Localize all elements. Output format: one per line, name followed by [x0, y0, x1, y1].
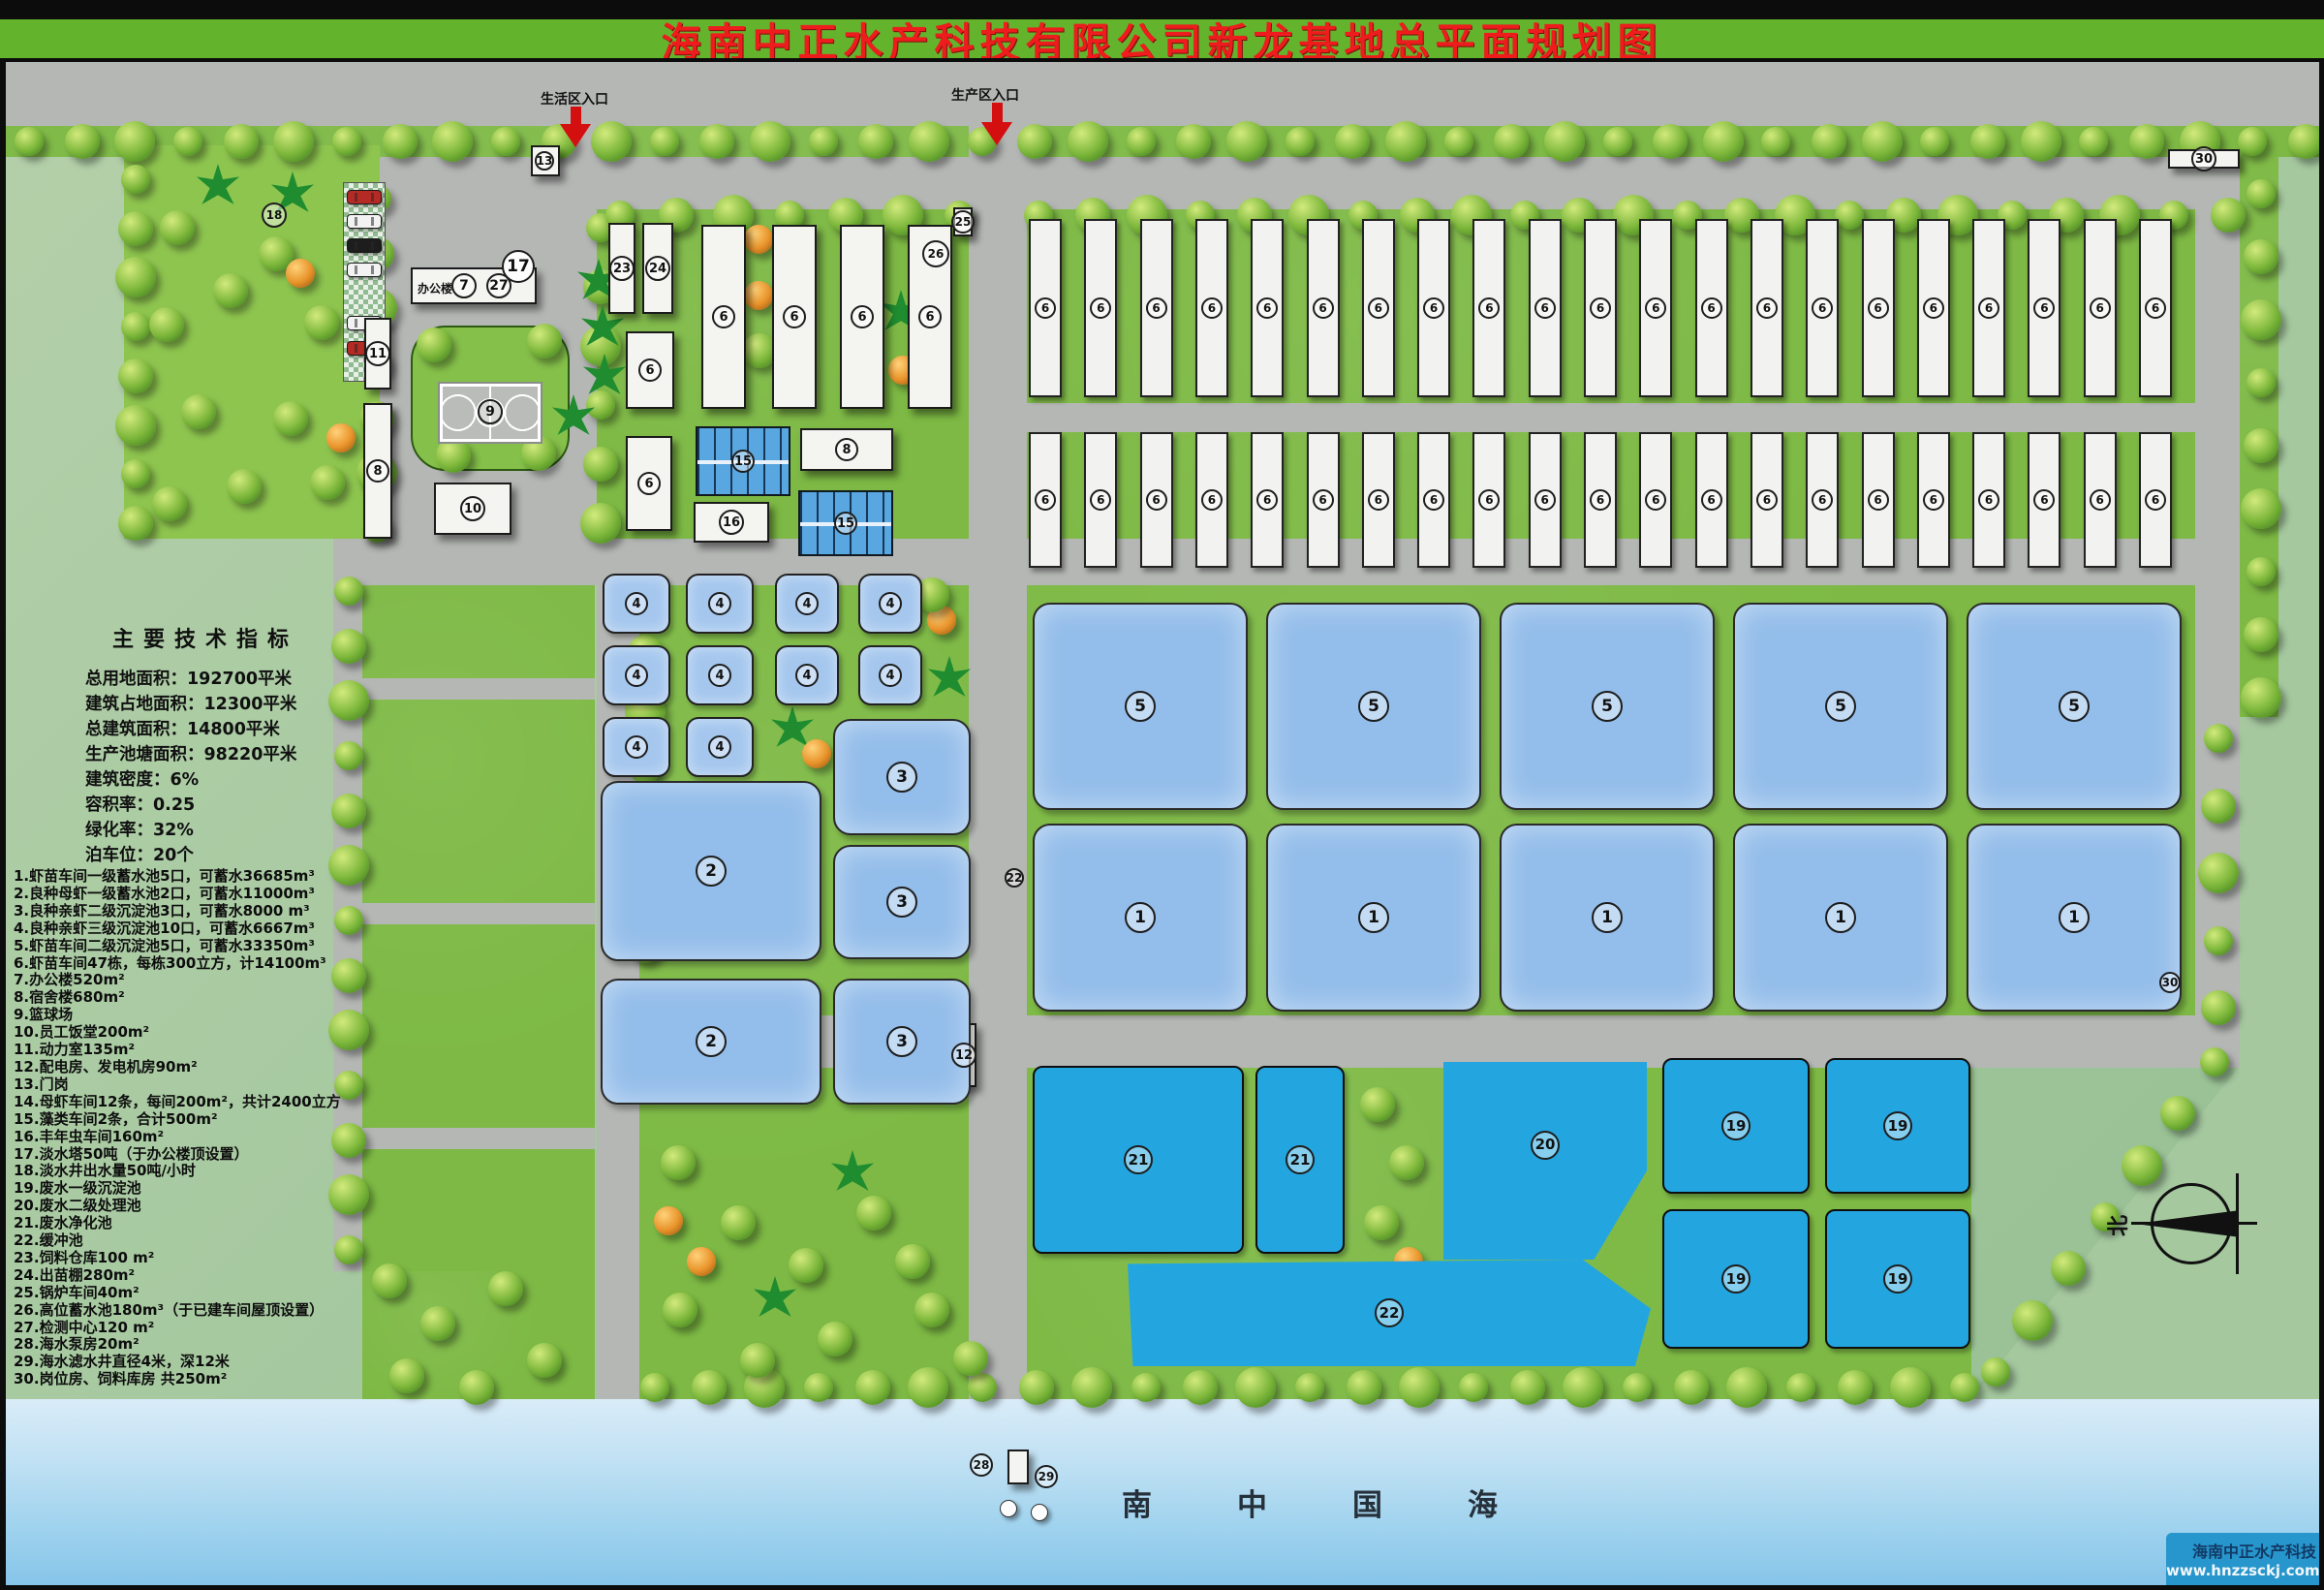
number-marker-28: 28 [970, 1453, 993, 1477]
legend-item: 3.良种亲虾二级沉淀池3口，可蓄水8000 m³ [14, 903, 339, 920]
filter-well-dot [1000, 1500, 1017, 1517]
frame-right [2319, 62, 2324, 1590]
tree [663, 1293, 697, 1327]
tree [310, 465, 345, 500]
tree [661, 1145, 696, 1180]
hedge-bush [2012, 1300, 2053, 1341]
hedge-bush [2201, 789, 2236, 824]
number-marker-10: 10 [460, 496, 485, 521]
hedge-bush [1563, 1367, 1603, 1408]
number-marker-26: 26 [922, 240, 949, 267]
site-road [362, 903, 595, 924]
legend-item: 8.宿舍楼680m² [14, 989, 339, 1007]
hedge-bush [2200, 1047, 2229, 1076]
entrance-living-label: 生活区入口 [541, 89, 608, 109]
hedge-bush [224, 124, 259, 159]
hedge-bush [1071, 1367, 1112, 1408]
number-marker-13: 13 [535, 151, 554, 171]
tree [802, 739, 831, 768]
number-marker-23: 23 [609, 256, 635, 281]
number-marker-24: 24 [645, 256, 670, 281]
number-marker-6: 6 [918, 305, 942, 328]
number-marker-3: 3 [886, 887, 917, 918]
entrance-production-label: 生产区入口 [951, 85, 1019, 105]
hedge-bush [1603, 127, 1632, 156]
tree [740, 1343, 775, 1378]
legend-item: 7.办公楼520m² [14, 972, 339, 989]
hedge-bush [2241, 299, 2281, 340]
site-plan-canvas: 海南中正水产科技有限公司新龙基地总平面规划图 海榆西线 生活区入口 生产区入口 … [0, 0, 2324, 1590]
number-marker-1: 1 [1592, 902, 1623, 933]
hedge-bush [2247, 557, 2276, 586]
number-marker-11: 11 [365, 341, 390, 366]
indicator-line: 总建筑面积：14800平米 [85, 717, 376, 742]
indicator-line: 建筑占地面积：12300平米 [85, 692, 376, 717]
tree [687, 1247, 716, 1276]
hedge-bush [1970, 124, 2005, 159]
legend-item: 28.海水泵房20m² [14, 1336, 339, 1354]
frame-bottom [0, 1585, 2324, 1590]
tree [389, 1358, 424, 1393]
parked-car [347, 190, 382, 204]
legend-item: 19.废水一级沉淀池 [14, 1180, 339, 1198]
hedge-bush [1494, 124, 1529, 159]
hedge-bush [1399, 1367, 1440, 1408]
tree [744, 281, 773, 310]
number-marker-4: 4 [625, 735, 648, 759]
number-marker-4: 4 [625, 592, 648, 615]
number-marker-6: 6 [1923, 489, 1944, 511]
legend-item: 24.出苗棚280m² [14, 1267, 339, 1285]
tree [181, 394, 216, 429]
hedge-bush [1131, 1373, 1161, 1402]
number-marker-19: 19 [1883, 1111, 1912, 1140]
legend-item: 12.配电房、发电机房90m² [14, 1059, 339, 1076]
legend-item: 15.藻类车间2条，合计500m² [14, 1111, 339, 1129]
number-marker-6: 6 [637, 472, 661, 495]
hedge-bush [118, 359, 153, 393]
site-road [969, 585, 1027, 1399]
hedge-bush [1812, 124, 1846, 159]
number-marker-6: 6 [1756, 297, 1778, 319]
indicator-line: 建筑密度：6% [85, 767, 376, 793]
hedge-bush [1127, 127, 1156, 156]
hedge-bush [173, 127, 202, 156]
tree [744, 225, 773, 254]
number-marker-6: 6 [1035, 297, 1056, 319]
indicator-line: 绿化率：32% [85, 818, 376, 843]
hedge-bush [640, 1373, 669, 1402]
number-marker-6: 6 [2090, 489, 2111, 511]
number-marker-30: 30 [2191, 146, 2216, 171]
number-marker-6: 6 [1201, 297, 1223, 319]
indicator-line: 生产池塘面积：98220平米 [85, 742, 376, 767]
number-marker-2: 2 [696, 1026, 727, 1057]
filter-well-dot [1031, 1504, 1048, 1521]
legend-item: 13.门岗 [14, 1076, 339, 1094]
tree [721, 1205, 756, 1240]
sea-pump-28 [1007, 1450, 1029, 1484]
legend-item: 16.丰年虫车间160m² [14, 1129, 339, 1146]
number-marker-6: 6 [1423, 297, 1444, 319]
number-marker-16: 16 [719, 510, 744, 535]
number-marker-6: 6 [1146, 297, 1167, 319]
legend-item: 17.淡水塔50吨（于办公楼顶设置） [14, 1146, 339, 1164]
entrance-production-arrow [981, 122, 1012, 161]
number-marker-6: 6 [1868, 489, 1889, 511]
number-marker-1: 1 [1125, 902, 1156, 933]
hedge-bush [2244, 428, 2278, 463]
number-marker-29: 29 [1035, 1465, 1058, 1488]
hedge-bush [1703, 121, 1744, 162]
legend-item: 1.虾苗车间一级蓄水池5口，可蓄水36685m³ [14, 868, 339, 886]
hedge-bush [591, 121, 632, 162]
logo-company: 海南中正水产科技 [2166, 1533, 2324, 1562]
hedge-bush [1286, 127, 1315, 156]
compass-north-label: 北 [2101, 1215, 2132, 1236]
hedge-bush [750, 121, 790, 162]
number-marker-15: 15 [834, 512, 857, 535]
tree [914, 1293, 949, 1327]
compass: 北 [2102, 1168, 2277, 1279]
number-marker-4: 4 [795, 592, 819, 615]
entrance-living-arrow-stem [571, 107, 581, 124]
hedge-bush [118, 211, 153, 246]
tree [149, 307, 184, 342]
number-marker-1: 1 [2059, 902, 2090, 933]
site-road [362, 1128, 595, 1149]
tree [856, 1196, 891, 1231]
tree [654, 1206, 683, 1235]
hedge-bush [1235, 1367, 1276, 1408]
number-marker-25: 25 [951, 210, 975, 234]
hedge-bush [1459, 1373, 1488, 1402]
number-marker-5: 5 [1125, 691, 1156, 722]
hedge-bush [1950, 1373, 1979, 1402]
hedge-bush [1335, 124, 1370, 159]
parked-car [347, 263, 382, 277]
hedge-bush [334, 577, 363, 606]
logo-website: www.hnzzsckj.com [2166, 1562, 2324, 1579]
tree [304, 305, 339, 340]
tree [420, 1306, 455, 1341]
sea-name: 南中国海 [1122, 1481, 1583, 1524]
tree [213, 273, 248, 308]
hedge-bush [650, 127, 679, 156]
number-marker-6: 6 [2090, 297, 2111, 319]
legend-item: 25.锅炉车间40m² [14, 1285, 339, 1302]
number-marker-6: 6 [638, 359, 662, 382]
number-marker-12: 12 [951, 1043, 976, 1068]
number-marker-6: 6 [712, 305, 735, 328]
number-marker-6: 6 [1313, 297, 1334, 319]
legend: 1.虾苗车间一级蓄水池5口，可蓄水36685m³2.良种母虾一级蓄水池2口，可蓄… [14, 868, 339, 1388]
hedge-bush [491, 127, 520, 156]
legend-item: 11.动力室135m² [14, 1042, 339, 1059]
frame-left [0, 62, 6, 1590]
number-marker-22: 22 [1375, 1298, 1404, 1327]
legend-item: 27.检测中心120 m² [14, 1320, 339, 1337]
number-marker-6: 6 [1534, 489, 1556, 511]
tree [286, 259, 315, 288]
hedge-bush [2021, 121, 2061, 162]
number-marker-21: 21 [1124, 1145, 1153, 1174]
tree [372, 1263, 407, 1298]
number-marker-6: 6 [1590, 297, 1611, 319]
tree [459, 1370, 494, 1405]
hedge-bush [2241, 677, 2281, 718]
hedge-bush [432, 121, 473, 162]
number-marker-6: 6 [1368, 297, 1389, 319]
number-marker-6: 6 [1923, 297, 1944, 319]
hedge-bush [1444, 127, 1473, 156]
number-marker-6: 6 [1701, 489, 1722, 511]
tree [1364, 1205, 1399, 1240]
tree [1360, 1087, 1395, 1122]
number-marker-4: 4 [795, 664, 819, 687]
hedge-bush [580, 503, 621, 544]
legend-item: 4.良种亲虾三级沉淀池10口，可蓄水6667m³ [14, 920, 339, 938]
site-road [0, 62, 2324, 126]
hedge-bush [2244, 617, 2278, 652]
number-marker-6: 6 [1534, 297, 1556, 319]
tree [527, 1343, 562, 1378]
number-marker-6: 6 [1035, 489, 1056, 511]
number-marker-15: 15 [731, 450, 755, 473]
number-marker-4: 4 [879, 664, 902, 687]
number-marker-8: 8 [366, 459, 389, 483]
number-marker-6: 6 [1146, 489, 1167, 511]
hedge-bush [118, 506, 153, 541]
hedge-bush [2198, 853, 2239, 893]
number-marker-5: 5 [1825, 691, 1856, 722]
number-marker-6: 6 [2145, 297, 2166, 319]
hedge-bush [2247, 179, 2276, 208]
hedge-bush [1544, 121, 1585, 162]
hedge-bush [2204, 926, 2233, 955]
number-marker-18: 18 [262, 203, 287, 228]
number-marker-19: 19 [1721, 1264, 1751, 1294]
frame-under-title [0, 58, 2324, 62]
tree [527, 324, 562, 359]
legend-item: 5.虾苗车间二级沉淀池5口，可蓄水33350m³ [14, 938, 339, 955]
hedge-bush [1295, 1373, 1324, 1402]
number-marker-4: 4 [625, 664, 648, 687]
hedge-bush [1623, 1373, 1652, 1402]
number-marker-6: 6 [1868, 297, 1889, 319]
hedge-bush [908, 1367, 948, 1408]
tree [488, 1271, 523, 1306]
hedge-bush [1385, 121, 1426, 162]
tree [152, 486, 187, 521]
number-marker-6: 6 [1423, 489, 1444, 511]
tree [818, 1322, 852, 1356]
hedge-bush [1890, 1367, 1931, 1408]
number-marker-6: 6 [851, 305, 874, 328]
basketball-court-label: 9 [478, 399, 503, 424]
legend-item: 18.淡水井出水量50吨/小时 [14, 1163, 339, 1180]
number-marker-22: 22 [1005, 868, 1024, 888]
tree [895, 1244, 930, 1279]
hedge-bush [1981, 1357, 2010, 1387]
legend-item: 23.饲料仓库100 m² [14, 1250, 339, 1267]
legend-item: 20.废水二级处理池 [14, 1198, 339, 1215]
hedge-bush [1068, 121, 1108, 162]
number-marker-6: 6 [1201, 489, 1223, 511]
hedge-bush [809, 127, 838, 156]
number-marker-20: 20 [1531, 1131, 1560, 1160]
indicator-line: 容积率：0.25 [85, 793, 376, 818]
hedge-bush [804, 1373, 833, 1402]
number-marker-1: 1 [1825, 902, 1856, 933]
hedge-bush [1862, 121, 1903, 162]
number-marker-6: 6 [1756, 489, 1778, 511]
legend-item: 30.岗位房、饲料库房 共250m² [14, 1371, 339, 1388]
hedge-bush [383, 124, 418, 159]
indicators-title: 主要技术指标 [112, 622, 376, 653]
office-circle-7: 7 [451, 273, 477, 298]
tree [789, 1248, 823, 1283]
hedge-bush [114, 121, 155, 162]
number-marker-5: 5 [1592, 691, 1623, 722]
hedge-bush [2247, 368, 2276, 397]
hedge-bush [1226, 121, 1267, 162]
site-road [362, 678, 595, 700]
number-marker-8: 8 [835, 438, 858, 461]
legend-item: 22.缓冲池 [14, 1232, 339, 1250]
number-marker-1: 1 [1358, 902, 1389, 933]
hedge-bush [332, 127, 361, 156]
tree [160, 210, 195, 245]
legend-item: 21.废水净化池 [14, 1215, 339, 1232]
hedge-bush [909, 121, 949, 162]
number-marker-6: 6 [1978, 297, 1999, 319]
hedge-bush [121, 165, 150, 194]
hedge-bush [2244, 239, 2278, 274]
number-marker-3: 3 [886, 762, 917, 793]
hedge-bush [583, 447, 618, 482]
number-marker-6: 6 [783, 305, 806, 328]
tree [953, 1341, 988, 1376]
hedge-bush [2211, 198, 2246, 233]
tree [273, 401, 308, 436]
legend-item: 10.员工饭堂200m² [14, 1024, 339, 1042]
hedge-bush [2160, 1096, 2195, 1131]
number-marker-21: 21 [1286, 1145, 1315, 1174]
number-marker-6: 6 [1313, 489, 1334, 511]
number-marker-6: 6 [1701, 297, 1722, 319]
title-band: 海南中正水产科技有限公司新龙基地总平面规划图 [0, 19, 2324, 58]
parked-car [347, 214, 382, 229]
indicator-line: 泊车位：20个 [85, 843, 376, 868]
parked-car [347, 238, 382, 253]
hedge-bush [2204, 724, 2233, 753]
number-marker-19: 19 [1883, 1264, 1912, 1294]
hedge-bush [1653, 124, 1688, 159]
number-marker-6: 6 [1368, 489, 1389, 511]
site-road [1027, 403, 2195, 432]
legend-item: 29.海水滤水井直径4米，深12米 [14, 1354, 339, 1371]
hedge-bush [115, 405, 156, 446]
hedge-bush [2129, 124, 2164, 159]
number-marker-30: 30 [2159, 972, 2181, 993]
number-marker-6: 6 [1978, 489, 1999, 511]
tree [1389, 1145, 1424, 1180]
entrance-production-arrow-stem [992, 103, 1003, 122]
number-marker-5: 5 [2059, 691, 2090, 722]
legend-item: 2.良种母虾一级蓄水池2口，可蓄水11000m³ [14, 886, 339, 903]
number-marker-19: 19 [1721, 1111, 1751, 1140]
hedge-bush [2201, 990, 2236, 1025]
number-marker-6: 6 [2145, 489, 2166, 511]
hedge-bush [968, 1373, 997, 1402]
indicators-lines: 总用地面积：192700平米建筑占地面积：12300平米总建筑面积：14800平… [85, 667, 376, 868]
number-marker-4: 4 [708, 735, 731, 759]
number-marker-4: 4 [708, 592, 731, 615]
legend-item: 14.母虾车间12条，每间200m²，共计2400立方 [14, 1094, 339, 1111]
number-marker-3: 3 [886, 1026, 917, 1057]
number-marker-4: 4 [708, 664, 731, 687]
number-marker-5: 5 [1358, 691, 1389, 722]
water-tower-17: 17 [502, 250, 535, 283]
hedge-bush [65, 124, 100, 159]
logo-box: 海南中正水产科技 www.hnzzsckj.com [2166, 1533, 2324, 1585]
legend-item: 26.高位蓄水池180m³（于已建车间屋顶设置） [14, 1302, 339, 1320]
tree [326, 423, 356, 452]
hedge-bush [1786, 1373, 1815, 1402]
hedge-bush [273, 121, 314, 162]
technical-indicators: 主要技术指标 总用地面积：192700平米建筑占地面积：12300平米总建筑面积… [85, 622, 376, 868]
tree [227, 469, 262, 504]
number-marker-4: 4 [879, 592, 902, 615]
number-marker-2: 2 [696, 856, 727, 887]
hedge-bush [121, 312, 150, 341]
hedge-bush [586, 390, 615, 420]
hedge-bush [2241, 488, 2281, 529]
indicator-line: 总用地面积：192700平米 [85, 667, 376, 692]
hedge-bush [1726, 1367, 1767, 1408]
site-road [969, 209, 1027, 539]
tree [417, 327, 451, 362]
number-marker-6: 6 [1590, 489, 1611, 511]
legend-item: 9.篮球场 [14, 1007, 339, 1024]
legend-item: 6.虾苗车间47栋，每栋300立方，计14100m³ [14, 955, 339, 973]
office-building-label: 办公楼 [418, 280, 452, 296]
hedge-bush [15, 127, 44, 156]
hedge-bush [2288, 124, 2323, 159]
entrance-living-arrow [560, 124, 591, 163]
